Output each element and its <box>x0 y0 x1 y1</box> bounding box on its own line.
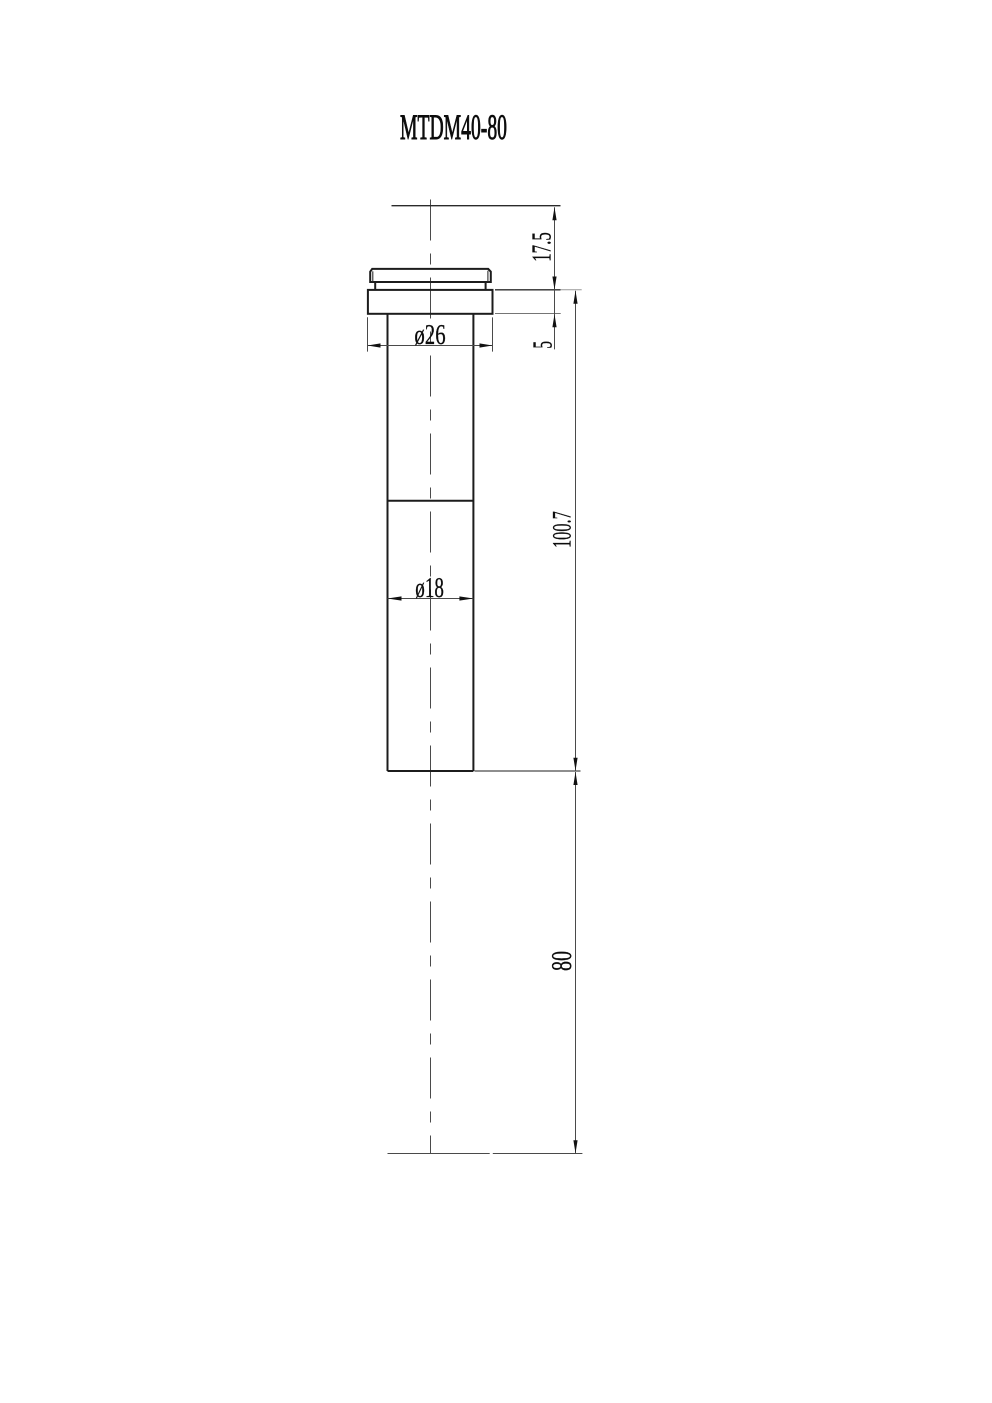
svg-text:ø26: ø26 <box>414 319 445 351</box>
svg-text:5: 5 <box>528 341 558 349</box>
svg-text:MTDM40-80: MTDM40-80 <box>400 107 507 147</box>
svg-text:ø18: ø18 <box>415 572 444 604</box>
svg-text:80: 80 <box>546 951 578 971</box>
svg-text:17.5: 17.5 <box>527 232 557 262</box>
svg-text:100.7: 100.7 <box>548 511 577 548</box>
